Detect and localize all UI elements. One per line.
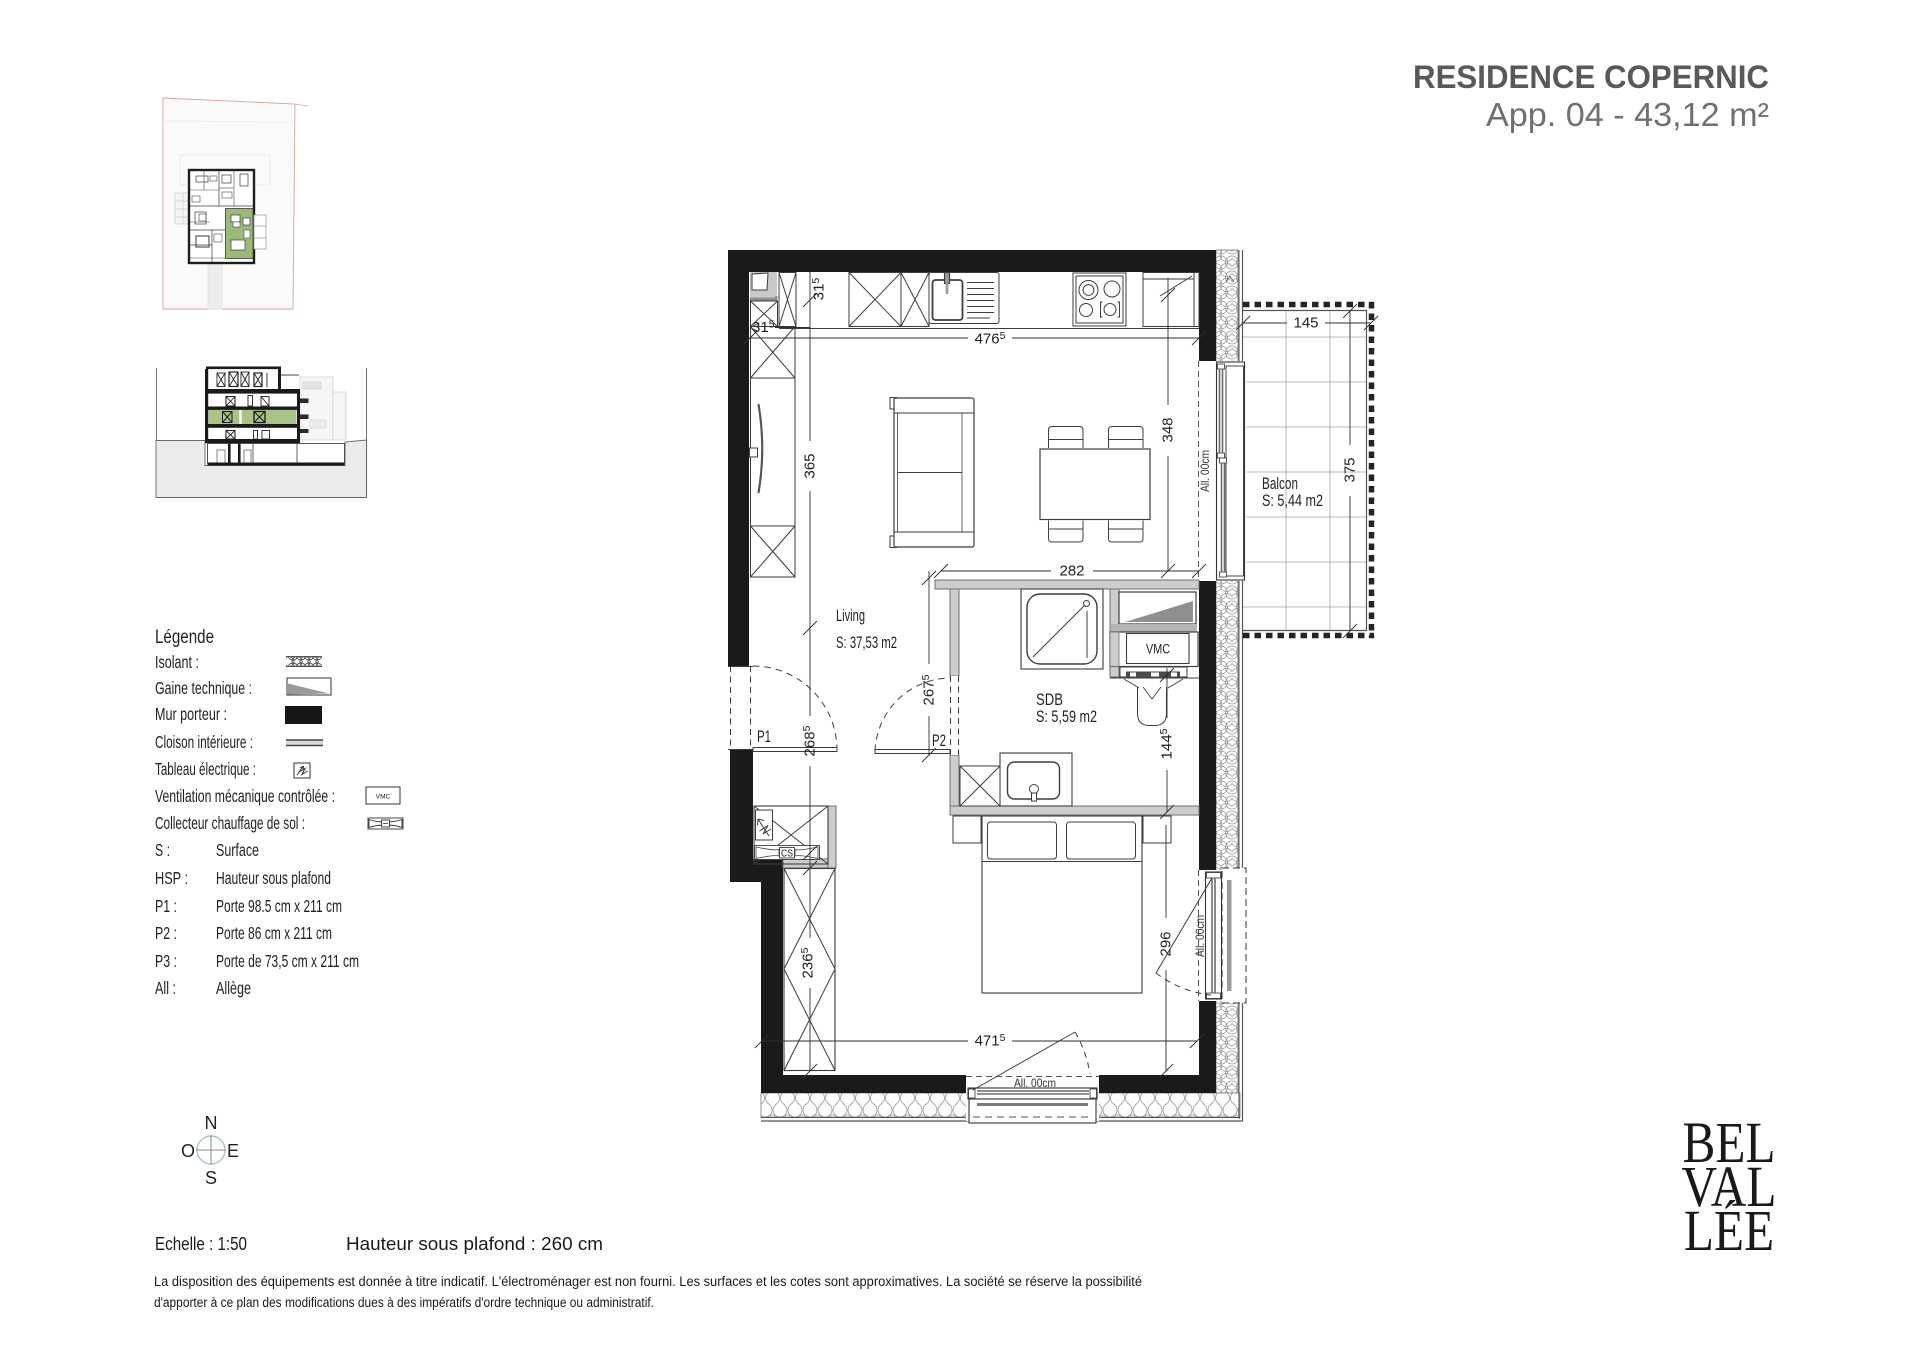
svg-text:375: 375 [1342,457,1359,482]
svg-text:Allège: Allège [216,978,251,998]
svg-text:All. 00cm: All. 00cm [1014,1076,1056,1090]
svg-text:SDB: SDB [1036,691,1063,709]
svg-text:Porte 86 cm x 211 cm: Porte 86 cm x 211 cm [216,923,332,943]
svg-text:Cloison intérieure :: Cloison intérieure : [155,732,253,752]
svg-text:348: 348 [1160,417,1177,442]
svg-text:S: 37,53 m2: S: 37,53 m2 [836,634,897,652]
svg-text:Living: Living [836,607,865,625]
svg-text:296: 296 [1158,931,1175,956]
svg-text:All :: All : [155,978,176,998]
svg-text:HSP :: HSP : [155,868,188,888]
svg-text:Hauteur sous plafond : 260 cm: Hauteur sous plafond : 260 cm [346,1234,603,1254]
svg-text:Porte 98.5 cm x 211 cm: Porte 98.5 cm x 211 cm [216,896,342,916]
svg-text:E: E [227,1141,239,1161]
svg-text:Surface: Surface [216,840,259,860]
svg-text:Balcon: Balcon [1262,475,1298,493]
svg-text:Ventilation mécanique contrôlé: Ventilation mécanique contrôlée : [155,786,335,806]
svg-text:All. 00cm: All. 00cm [1198,450,1212,492]
svg-text:Légende: Légende [155,626,214,648]
svg-text:RESIDENCE COPERNIC: RESIDENCE COPERNIC [1413,59,1769,95]
svg-text:S: 5,44 m2: S: 5,44 m2 [1262,492,1323,510]
svg-text:S :: S : [155,840,170,860]
svg-text:S: 5,59 m2: S: 5,59 m2 [1036,708,1097,726]
svg-text:Isolant :: Isolant : [155,652,199,672]
svg-text:P3 :: P3 : [155,951,177,971]
svg-text:LÉE: LÉE [1684,1198,1774,1263]
svg-text:P2 :: P2 : [155,923,177,943]
svg-text:P1 :: P1 : [155,896,177,916]
svg-text:P2: P2 [932,732,946,750]
svg-text:S: S [205,1168,217,1188]
svg-text:All. 00cm: All. 00cm [1193,915,1207,957]
svg-text:Mur porteur :: Mur porteur : [155,704,227,724]
svg-text:Tableau électrique :: Tableau électrique : [155,759,256,779]
svg-text:VMC: VMC [376,794,391,801]
svg-text:365: 365 [802,453,819,478]
svg-text:La disposition des équipements: La disposition des équipements est donné… [154,1274,1142,1289]
svg-text:VMC: VMC [1146,642,1170,657]
svg-text:282: 282 [1059,563,1084,580]
svg-text:App. 04 - 43,12 m²: App. 04 - 43,12 m² [1486,96,1769,133]
svg-text:N: N [205,1113,218,1133]
svg-text:P1: P1 [757,728,771,746]
svg-text:Echelle : 1:50: Echelle : 1:50 [155,1234,247,1254]
svg-text:145: 145 [1293,315,1318,332]
svg-text:O: O [181,1141,195,1161]
svg-text:Gaine technique :: Gaine technique : [155,678,252,698]
svg-text:Hauteur sous plafond: Hauteur sous plafond [216,868,331,888]
svg-text:Porte de 73,5 cm x 211 cm: Porte de 73,5 cm x 211 cm [216,951,359,971]
svg-text:d'apporter à ce plan des modif: d'apporter à ce plan des modifications d… [154,1295,654,1310]
svg-text:CS: CS [781,848,793,860]
svg-text:Collecteur chauffage de sol :: Collecteur chauffage de sol : [155,813,305,833]
